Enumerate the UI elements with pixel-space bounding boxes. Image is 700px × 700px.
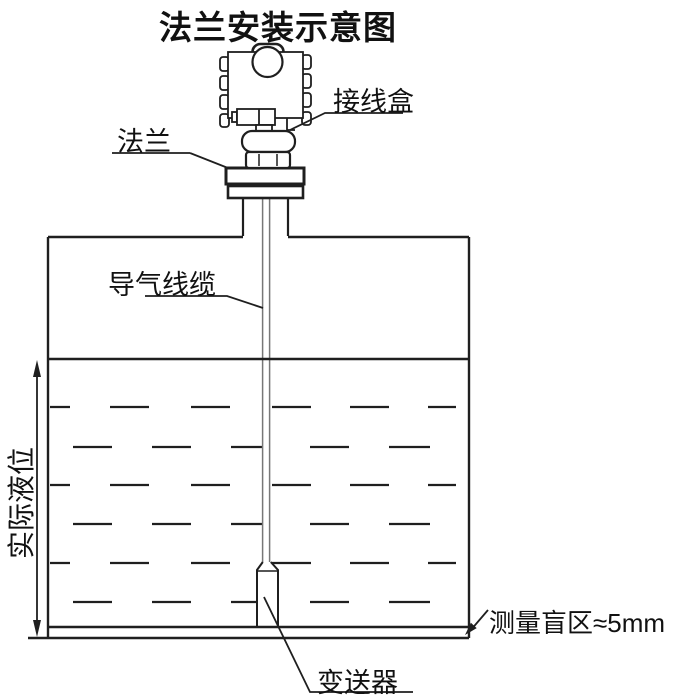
page-title: 法兰安装示意图: [128, 1, 428, 49]
tank-outline: [28, 237, 469, 638]
air-guide-cable-label: 导气线缆: [108, 263, 216, 302]
transmitter-label: 变送器: [317, 661, 398, 700]
transmitter-head: [220, 44, 311, 168]
diagram-stage: 法兰安装示意图 接线盒 法兰 导气线缆 实际液位 变送器 测量盲区≈5mm: [0, 0, 700, 700]
liquid-dashes: [50, 407, 456, 602]
leader-lines: [112, 113, 488, 692]
terminal-block: [232, 109, 275, 132]
hex-nut: [246, 152, 290, 168]
junction-box-label: 接线盒: [333, 80, 414, 119]
guide-cable-stem: [262, 186, 270, 563]
elbow-coupling: [242, 131, 295, 152]
flange-label: 法兰: [117, 120, 171, 159]
display-lens: [253, 47, 283, 77]
blind-zone-label: 测量盲区≈5mm: [489, 603, 665, 640]
actual-liquid-level-label: 实际液位: [5, 418, 39, 588]
flange-plate: [226, 168, 304, 198]
probe-transmitter: [257, 562, 278, 627]
